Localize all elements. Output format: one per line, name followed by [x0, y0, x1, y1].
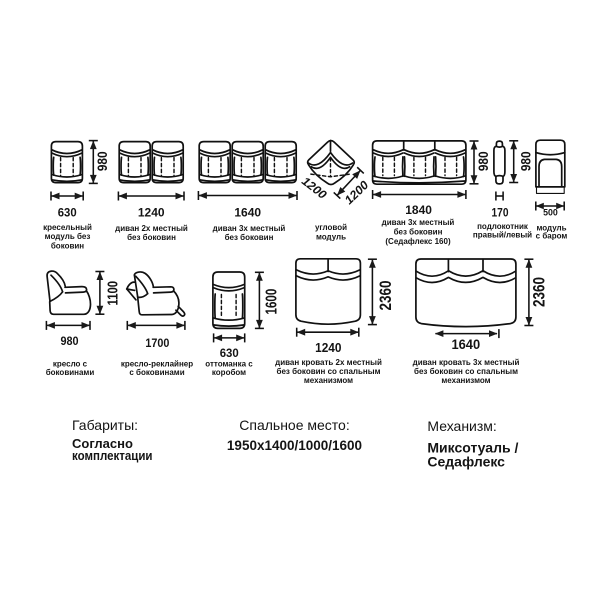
svg-text:980: 980	[95, 151, 110, 171]
svg-text:оттоманка с: оттоманка с	[205, 359, 253, 368]
svg-text:кресло с: кресло с	[53, 359, 88, 368]
svg-text:механизмом: механизмом	[441, 376, 490, 385]
svg-text:980: 980	[476, 151, 491, 171]
svg-text:1640: 1640	[234, 205, 261, 219]
svg-text:без боковин: без боковин	[225, 233, 274, 242]
svg-text:1640: 1640	[451, 337, 480, 352]
svg-text:Спальное место:: Спальное место:	[239, 417, 349, 433]
svg-text:170: 170	[492, 205, 509, 219]
svg-text:1240: 1240	[315, 341, 341, 355]
svg-text:модуль: модуль	[316, 233, 346, 242]
svg-text:(Седафлекс 160): (Седафлекс 160)	[385, 237, 451, 246]
svg-text:Габариты:: Габариты:	[72, 417, 138, 433]
svg-text:2360: 2360	[376, 281, 395, 311]
svg-text:кресло-реклайнер: кресло-реклайнер	[121, 359, 193, 368]
svg-text:1100: 1100	[104, 281, 121, 306]
svg-text:980: 980	[518, 151, 533, 171]
svg-text:1840: 1840	[405, 203, 432, 217]
svg-text:диван кровать 2х местный: диван кровать 2х местный	[275, 358, 382, 367]
svg-text:Механизм:: Механизм:	[427, 418, 496, 434]
svg-text:правый/левый: правый/левый	[473, 230, 532, 239]
svg-text:1600: 1600	[263, 289, 280, 315]
svg-text:кресельный: кресельный	[43, 223, 92, 232]
svg-text:модуль без: модуль без	[45, 232, 91, 241]
svg-text:Седафлекс: Седафлекс	[427, 454, 505, 470]
svg-text:механизмом: механизмом	[304, 376, 353, 385]
svg-text:без боковин со спальным: без боковин со спальным	[277, 367, 381, 376]
svg-text:боковинами: боковинами	[46, 368, 95, 377]
svg-text:500: 500	[543, 207, 558, 218]
svg-text:диван 3х местный: диван 3х местный	[213, 224, 286, 233]
svg-text:угловой: угловой	[315, 223, 347, 232]
svg-text:1200: 1200	[342, 178, 372, 207]
svg-text:2360: 2360	[530, 277, 549, 307]
svg-text:1950х1400/1000/1600: 1950х1400/1000/1600	[227, 438, 362, 453]
svg-text:с боковинами: с боковинами	[129, 368, 184, 377]
svg-text:1240: 1240	[138, 205, 165, 219]
svg-text:без боковин: без боковин	[127, 233, 176, 242]
svg-text:коробом: коробом	[212, 368, 246, 377]
svg-text:диван 3х местный: диван 3х местный	[382, 218, 455, 227]
svg-text:без боковин: без боковин	[394, 228, 443, 237]
svg-text:980: 980	[60, 334, 78, 348]
svg-text:комплектации: комплектации	[72, 448, 153, 463]
svg-text:1200: 1200	[299, 174, 330, 202]
svg-text:630: 630	[220, 346, 239, 360]
svg-text:диван кровать 3х местный: диван кровать 3х местный	[413, 358, 520, 367]
svg-text:630: 630	[58, 205, 77, 219]
svg-text:без боковин со спальным: без боковин со спальным	[414, 367, 518, 376]
svg-text:боковин: боковин	[51, 241, 84, 250]
svg-text:с баром: с баром	[536, 232, 568, 241]
svg-text:диван 2х местный: диван 2х местный	[115, 224, 188, 233]
svg-text:1700: 1700	[145, 336, 169, 350]
